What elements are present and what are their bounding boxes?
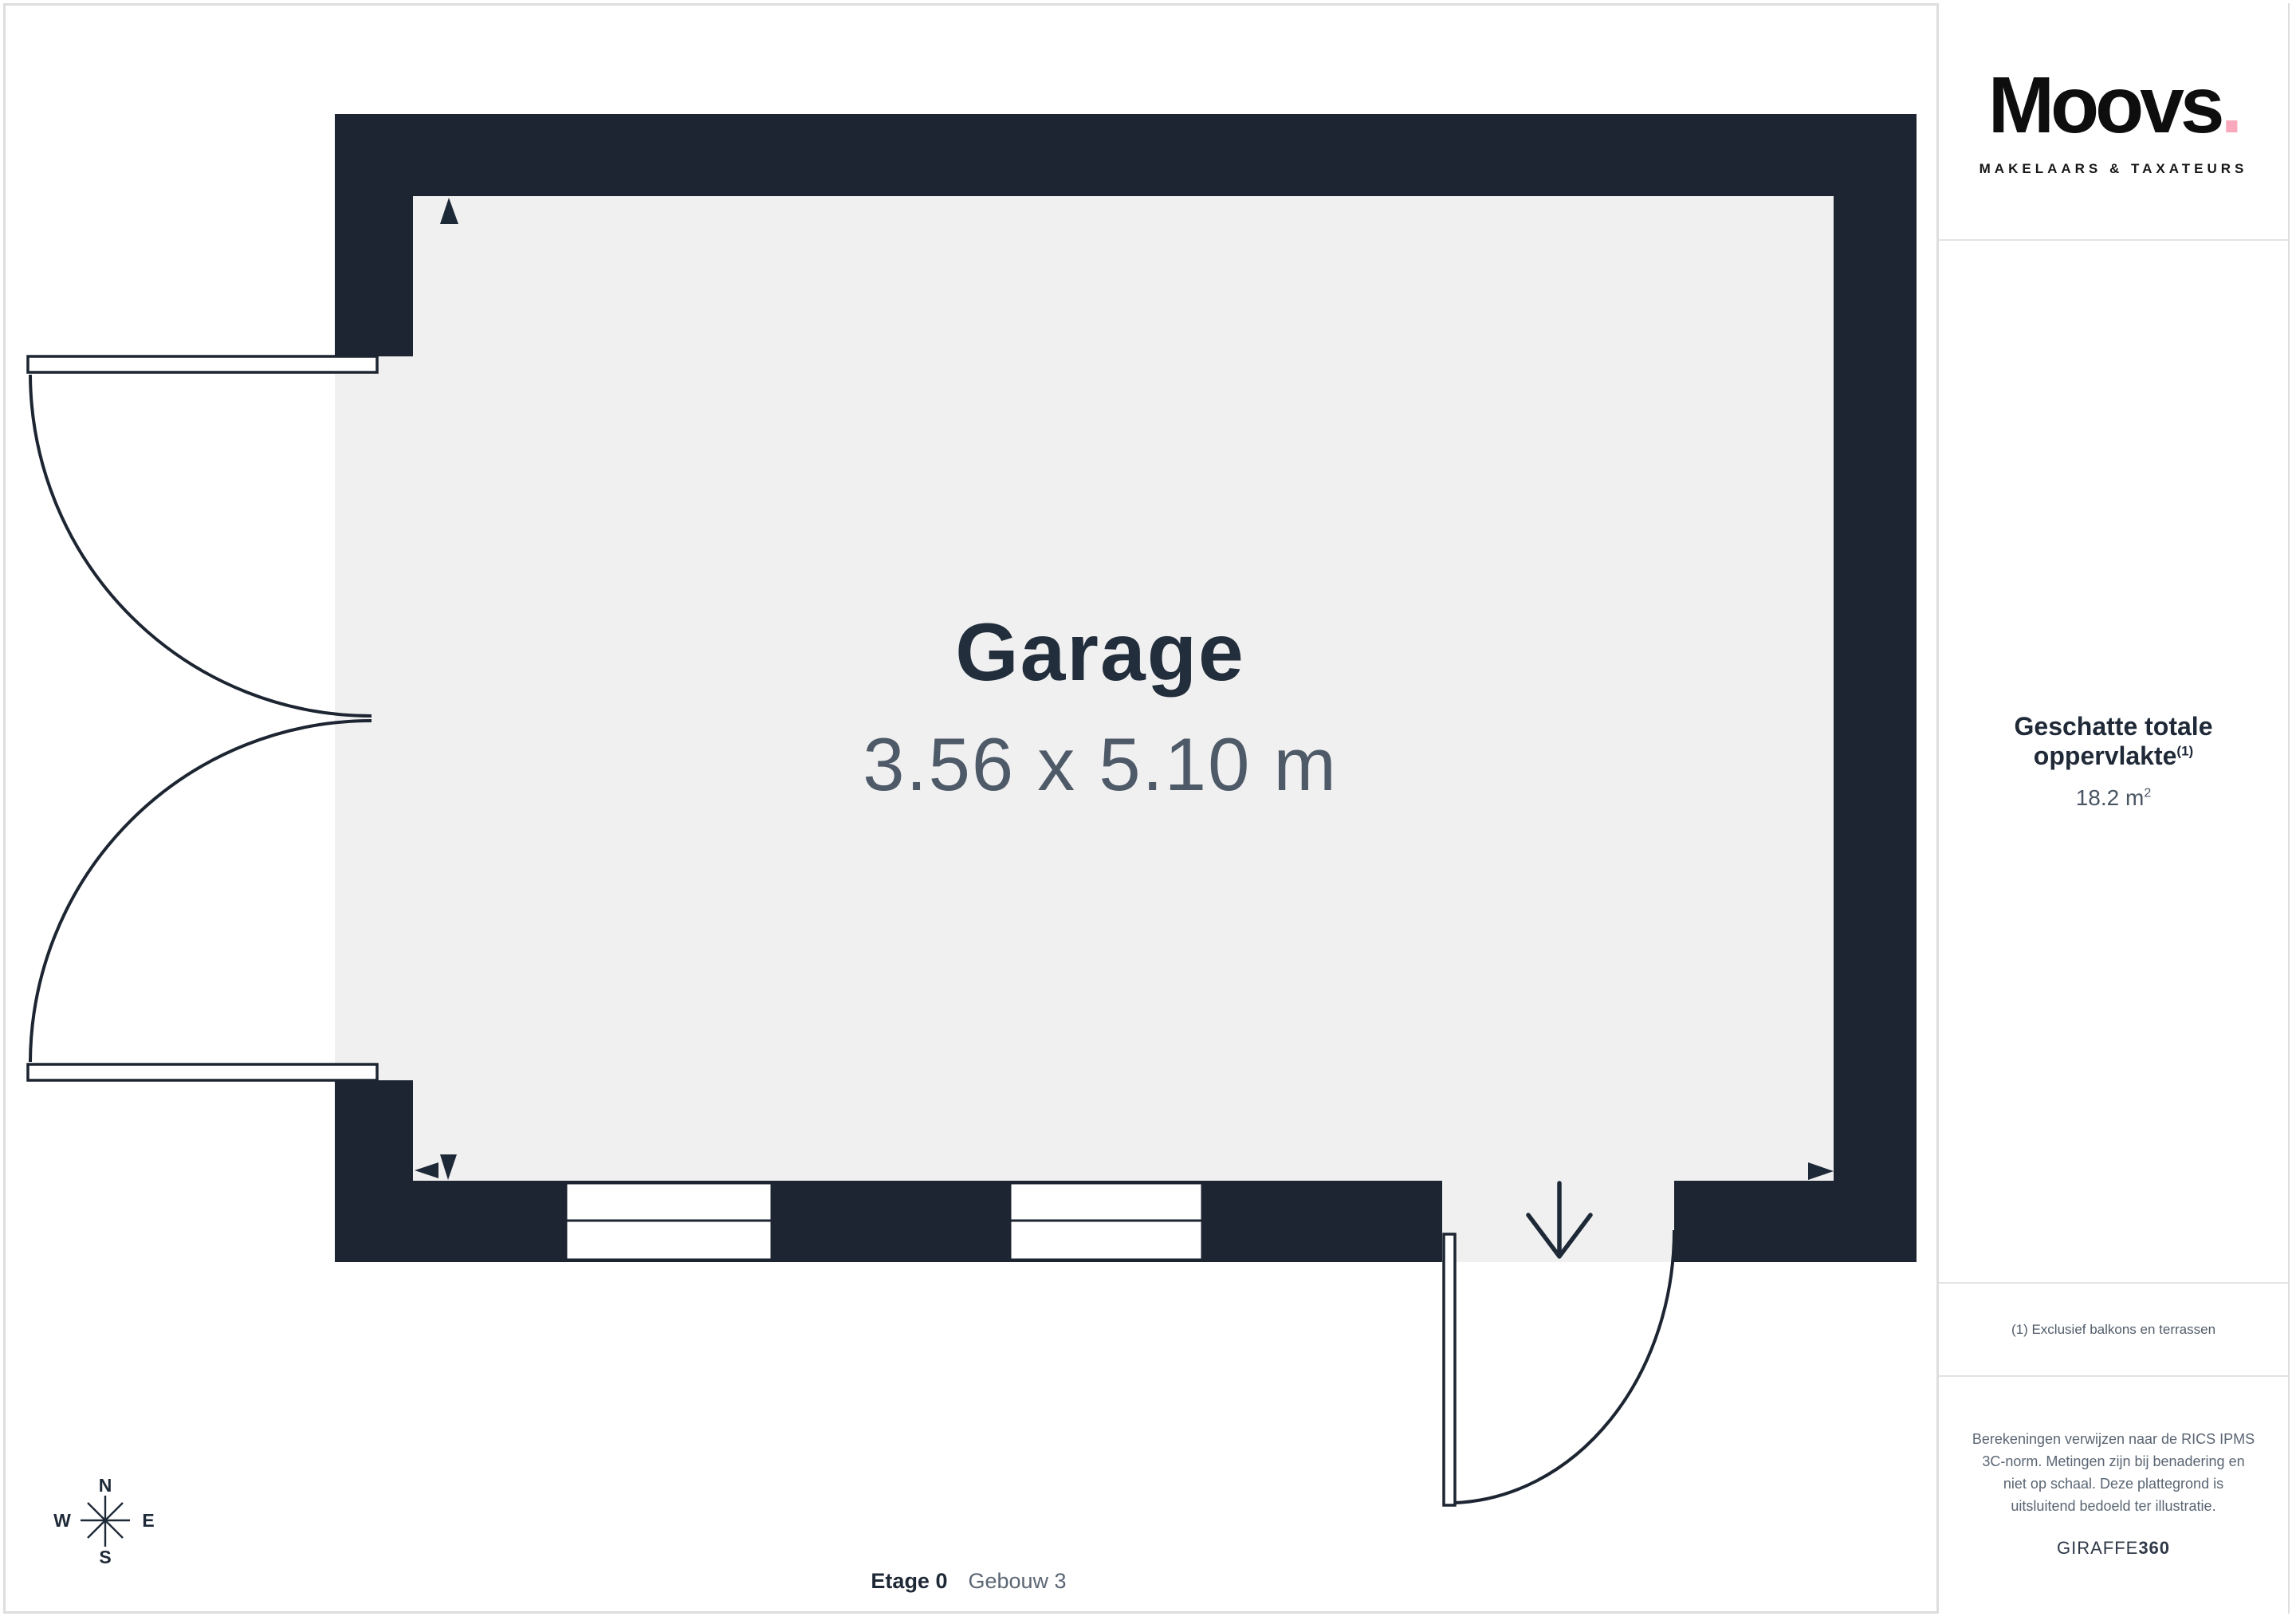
window-right xyxy=(1010,1183,1202,1260)
compass-west-label: W xyxy=(53,1510,71,1531)
entrance-door xyxy=(1444,1230,1674,1505)
disclaimer-text: Berekeningen verwijzen naar de RICS IPMS… xyxy=(1970,1428,2257,1517)
compass-north-label: N xyxy=(99,1475,112,1496)
giraffe360-suffix: 360 xyxy=(2138,1538,2170,1558)
double-door-left xyxy=(28,356,377,1080)
area-value: 18.2 m2 xyxy=(2076,785,2152,811)
door-leaf-top xyxy=(28,356,377,372)
room-name: Garage xyxy=(383,606,1818,699)
door-leaf-bottom xyxy=(28,1064,377,1080)
giraffe360-logo: GIRAFFE360 xyxy=(2057,1538,2170,1559)
room-dimensions: 3.56 x 5.10 m xyxy=(383,722,1818,808)
moovs-logo-dot: . xyxy=(2220,61,2239,150)
floor-label: Etage 0Gebouw 3 xyxy=(0,1569,1937,1594)
window-left xyxy=(566,1183,772,1260)
compass-south-label: S xyxy=(99,1547,111,1567)
footnote-section: (1) Exclusief balkons en terrassen xyxy=(1939,1284,2288,1377)
area-section: Geschatte totale oppervlakte(1) 18.2 m2 xyxy=(1939,241,2288,1284)
compass-east-label: E xyxy=(142,1510,154,1531)
room-label: Garage 3.56 x 5.10 m xyxy=(383,606,1818,808)
area-heading: Geschatte totale oppervlakte(1) xyxy=(1939,712,2288,771)
disclaimer-section: Berekeningen verwijzen naar de RICS IPMS… xyxy=(1939,1377,2288,1610)
sidebar: Moovs. MAKELAARS & TAXATEURS Geschatte t… xyxy=(1936,3,2288,1614)
footnote-text: (1) Exclusief balkons en terrassen xyxy=(2011,1322,2215,1338)
moovs-logo: Moovs. xyxy=(1988,65,2239,145)
area-heading-footnote-marker: (1) xyxy=(2176,743,2193,758)
door-leaf-entrance xyxy=(1444,1234,1455,1505)
compass-rose-icon xyxy=(81,1496,130,1547)
logo-tagline: MAKELAARS & TAXATEURS xyxy=(1980,161,2248,177)
moovs-wordmark: Moovs xyxy=(1988,61,2221,150)
area-value-unit-exponent: 2 xyxy=(2144,787,2151,800)
building-name: Gebouw 3 xyxy=(968,1569,1066,1593)
logo-section: Moovs. MAKELAARS & TAXATEURS xyxy=(1939,3,2288,241)
floor-level: Etage 0 xyxy=(871,1569,947,1593)
